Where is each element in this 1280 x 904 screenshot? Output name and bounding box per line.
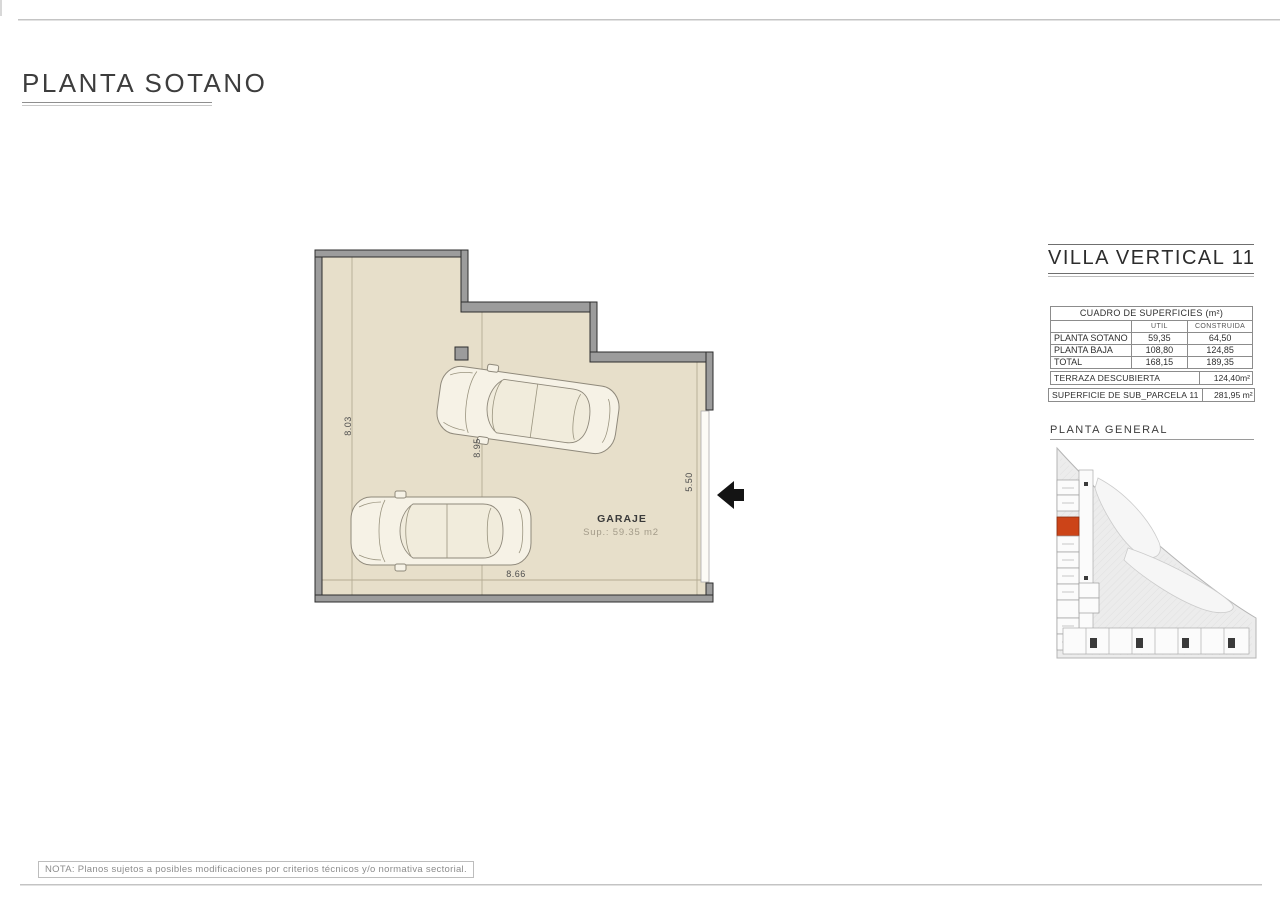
site-villa-column [1057,480,1079,650]
pillar [455,347,468,360]
row-construida: 64,50 [1188,333,1253,345]
entrance-arrow-icon [717,481,744,509]
table-row: TOTAL 168,15 189,35 [1051,357,1253,369]
planta-general-title: PLANTA GENERAL [1050,424,1168,436]
row-util: 59,35 [1131,333,1187,345]
dim-left: 8.03 [343,416,353,436]
planta-general-underline [1050,439,1254,440]
row-construida: 189,35 [1188,357,1253,369]
parcela-value: 281,95 m² [1202,389,1255,401]
site-road-vertical [1079,470,1093,648]
panel-rule-top [1048,244,1254,245]
surfaces-col-construida: CONSTRUIDA [1188,321,1253,333]
dim-inner: 8.95 [472,438,482,458]
drawing-layer: 8.03 8.95 5.50 8.66 GARAJE Sup.: 59.35 m… [0,0,1280,904]
garage-door [701,411,709,582]
row-construida: 124,85 [1188,345,1253,357]
panel-rule-bottom [1048,273,1254,277]
surfaces-table-title: CUADRO DE SUPERFICIES (m²) [1051,307,1253,321]
terraza-row: TERRAZA DESCUBIERTA 124,40m² [1050,371,1253,385]
table-row: PLANTA SOTANO 59,35 64,50 [1051,333,1253,345]
row-util: 108,80 [1131,345,1187,357]
room-label: GARAJE [597,513,647,525]
dim-bottom: 8.66 [506,569,526,579]
site-highlighted-unit [1057,517,1079,536]
dim-right: 5.50 [684,472,694,492]
site-villa-row [1063,628,1249,654]
terraza-label: TERRAZA DESCUBIERTA [1051,372,1199,384]
villa-title: VILLA VERTICAL 11 [1048,247,1254,270]
row-label: PLANTA SOTANO [1051,333,1132,345]
surfaces-col-blank [1051,321,1132,333]
row-label: PLANTA BAJA [1051,345,1132,357]
surfaces-table: CUADRO DE SUPERFICIES (m²) UTIL CONSTRUI… [1050,306,1253,369]
floor-plan: 8.03 8.95 5.50 8.66 GARAJE Sup.: 59.35 m… [315,250,744,602]
row-util: 168,15 [1131,357,1187,369]
panel-title-block: VILLA VERTICAL 11 [1048,244,1254,277]
table-row: PLANTA BAJA 108,80 124,85 [1051,345,1253,357]
parcela-row: SUPERFICIE DE SUB_PARCELA 11 281,95 m² [1048,388,1255,402]
car-bottom [351,491,531,571]
surfaces-col-util: UTIL [1131,321,1187,333]
row-label: TOTAL [1051,357,1132,369]
terraza-value: 124,40m² [1199,372,1252,384]
site-plan [1057,448,1256,658]
parcela-label: SUPERFICIE DE SUB_PARCELA 11 [1049,389,1202,401]
note-box: NOTA: Planos sujetos a posibles modifica… [38,861,474,878]
room-area-label: Sup.: 59.35 m2 [583,527,659,538]
